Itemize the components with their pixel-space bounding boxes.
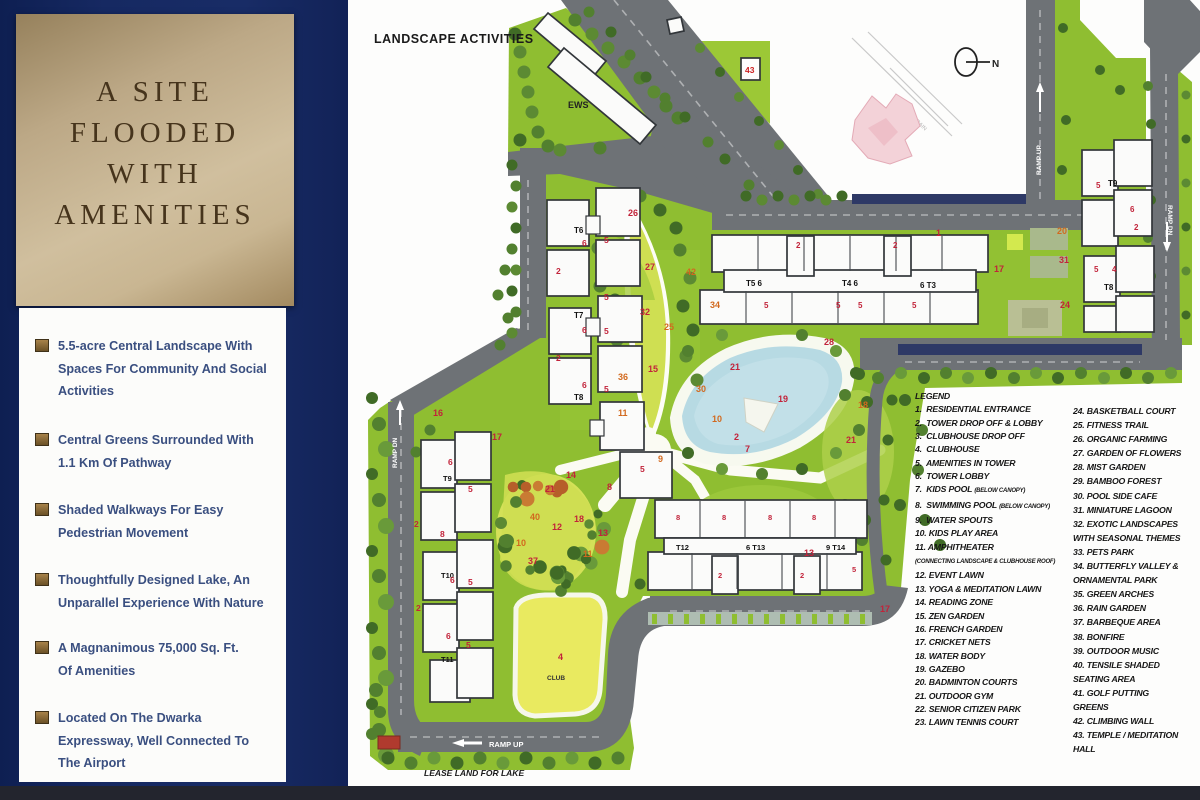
svg-text:11: 11: [583, 549, 593, 559]
svg-text:6: 6: [582, 238, 587, 248]
svg-text:5: 5: [468, 484, 473, 494]
svg-text:2: 2: [718, 571, 722, 580]
svg-text:6: 6: [582, 325, 587, 335]
svg-text:2: 2: [734, 432, 739, 442]
svg-text:6 T13: 6 T13: [746, 543, 765, 552]
svg-text:RAMP UP: RAMP UP: [1036, 144, 1043, 175]
svg-text:T9: T9: [1108, 179, 1118, 188]
svg-text:6: 6: [582, 380, 587, 390]
svg-text:T6: T6: [574, 226, 584, 235]
svg-text:25: 25: [664, 322, 674, 332]
svg-text:T7: T7: [574, 311, 584, 320]
svg-text:13: 13: [598, 528, 608, 538]
svg-text:5: 5: [1096, 181, 1101, 190]
svg-text:2: 2: [416, 603, 421, 613]
svg-text:7: 7: [745, 444, 750, 454]
svg-text:16: 16: [433, 408, 443, 418]
svg-text:2: 2: [556, 266, 561, 276]
svg-text:5: 5: [604, 326, 609, 336]
svg-text:11: 11: [618, 408, 628, 418]
svg-text:8: 8: [676, 513, 680, 522]
svg-text:32: 32: [640, 307, 650, 317]
svg-text:40: 40: [530, 512, 540, 522]
svg-text:5: 5: [1094, 265, 1099, 274]
svg-text:27: 27: [645, 262, 655, 272]
svg-text:5: 5: [468, 577, 473, 587]
svg-text:2: 2: [796, 241, 801, 250]
svg-text:34: 34: [710, 300, 720, 310]
svg-text:20: 20: [1057, 226, 1067, 236]
svg-text:6: 6: [1130, 205, 1135, 214]
svg-text:5: 5: [640, 464, 645, 474]
svg-text:2: 2: [893, 241, 898, 250]
svg-text:LANDSCAPE ACTIVITIES: LANDSCAPE ACTIVITIES: [374, 32, 534, 46]
svg-text:T5 6: T5 6: [746, 279, 763, 288]
svg-text:17: 17: [492, 432, 502, 442]
svg-text:21: 21: [730, 362, 740, 372]
svg-text:2: 2: [414, 519, 419, 529]
svg-text:CLUB: CLUB: [547, 675, 565, 682]
svg-text:42: 42: [686, 267, 696, 277]
svg-text:T9: T9: [443, 474, 452, 483]
svg-text:10: 10: [712, 414, 722, 424]
svg-text:36: 36: [618, 372, 628, 382]
svg-text:17: 17: [880, 604, 890, 614]
svg-text:12: 12: [552, 522, 562, 532]
svg-text:5: 5: [852, 565, 856, 574]
svg-text:21: 21: [846, 435, 856, 445]
svg-text:RAMP DN: RAMP DN: [392, 437, 399, 468]
svg-text:43: 43: [745, 65, 755, 75]
svg-text:28: 28: [824, 337, 834, 347]
svg-text:18: 18: [574, 514, 584, 524]
svg-text:26: 26: [628, 208, 638, 218]
svg-text:15: 15: [648, 364, 658, 374]
svg-text:LEASE LAND FOR LAKE: LEASE LAND FOR LAKE: [424, 768, 524, 778]
svg-text:5: 5: [836, 301, 841, 310]
svg-text:8: 8: [722, 513, 726, 522]
svg-text:N: N: [992, 59, 999, 70]
svg-text:4: 4: [1112, 265, 1117, 274]
svg-text:9 T14: 9 T14: [826, 543, 846, 552]
svg-text:8: 8: [607, 482, 612, 492]
svg-text:8: 8: [768, 513, 772, 522]
svg-text:1: 1: [936, 228, 941, 238]
svg-text:19: 19: [778, 394, 788, 404]
svg-text:RAMP UP: RAMP UP: [489, 740, 523, 749]
svg-text:5: 5: [764, 301, 769, 310]
svg-text:4: 4: [558, 652, 563, 662]
svg-text:EWS: EWS: [568, 100, 589, 110]
svg-text:5: 5: [604, 235, 609, 245]
svg-text:24: 24: [1060, 300, 1070, 310]
svg-text:6: 6: [446, 631, 451, 641]
svg-text:31: 31: [1059, 255, 1069, 265]
svg-text:6: 6: [450, 575, 455, 585]
svg-text:17: 17: [994, 264, 1004, 274]
svg-text:T8: T8: [1104, 283, 1114, 292]
svg-text:T12: T12: [676, 543, 689, 552]
svg-text:9: 9: [658, 454, 663, 464]
svg-text:21: 21: [545, 484, 555, 494]
svg-text:T8: T8: [574, 393, 584, 402]
svg-text:6 T3: 6 T3: [920, 281, 937, 290]
svg-text:18: 18: [858, 400, 868, 410]
svg-text:10: 10: [516, 538, 526, 548]
svg-text:14: 14: [566, 470, 576, 480]
svg-text:30: 30: [696, 384, 706, 394]
svg-text:37: 37: [528, 556, 538, 566]
svg-text:5: 5: [912, 301, 917, 310]
svg-text:5: 5: [466, 640, 471, 650]
svg-text:T11: T11: [441, 655, 454, 664]
svg-text:2: 2: [1134, 223, 1139, 232]
svg-text:T4 6: T4 6: [842, 279, 859, 288]
svg-text:13: 13: [804, 548, 814, 558]
svg-text:5: 5: [604, 384, 609, 394]
svg-text:8: 8: [812, 513, 816, 522]
svg-text:2: 2: [556, 353, 561, 363]
svg-text:8: 8: [440, 529, 445, 539]
svg-text:5: 5: [858, 301, 863, 310]
svg-text:6: 6: [448, 457, 453, 467]
svg-text:2: 2: [800, 571, 804, 580]
svg-text:5: 5: [604, 292, 609, 302]
